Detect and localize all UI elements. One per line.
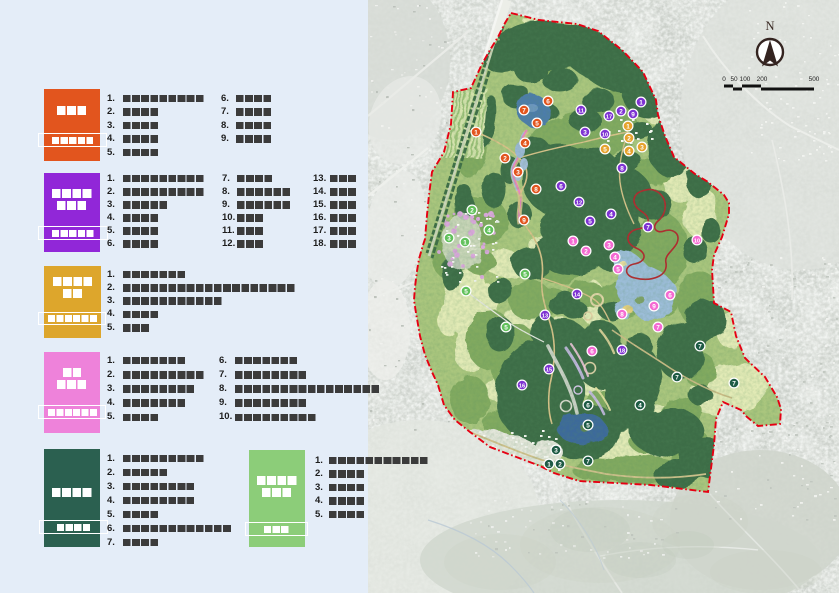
svg-text:1: 1 (547, 461, 551, 468)
svg-text:15: 15 (546, 367, 552, 373)
svg-text:5: 5 (616, 266, 620, 273)
svg-text:4: 4 (523, 140, 527, 147)
svg-text:3: 3 (554, 447, 558, 454)
svg-text:7: 7 (646, 224, 650, 231)
svg-text:17: 17 (606, 114, 612, 120)
svg-text:7: 7 (675, 374, 679, 381)
svg-text:4: 4 (609, 211, 613, 218)
svg-text:16: 16 (519, 383, 525, 389)
svg-text:7: 7 (698, 343, 702, 350)
svg-text:4: 4 (638, 402, 642, 409)
svg-text:13: 13 (542, 313, 548, 319)
svg-text:5: 5 (586, 422, 590, 429)
svg-text:9: 9 (522, 217, 526, 224)
svg-text:0: 0 (722, 76, 726, 83)
svg-text:18: 18 (619, 348, 625, 354)
svg-text:7: 7 (586, 458, 590, 465)
svg-text:6: 6 (559, 183, 563, 190)
svg-text:1: 1 (626, 123, 630, 130)
svg-text:9: 9 (652, 303, 656, 310)
svg-text:5: 5 (464, 288, 468, 295)
svg-text:3: 3 (583, 129, 587, 136)
svg-text:N: N (765, 19, 774, 33)
svg-text:1: 1 (474, 129, 478, 136)
svg-text:6: 6 (668, 292, 672, 299)
svg-text:100: 100 (740, 76, 751, 83)
svg-text:4: 4 (627, 148, 631, 155)
svg-text:7: 7 (732, 380, 736, 387)
svg-text:3: 3 (607, 242, 611, 249)
svg-text:9: 9 (631, 111, 635, 118)
svg-text:3: 3 (447, 235, 451, 242)
svg-text:1: 1 (639, 99, 643, 106)
svg-text:2: 2 (584, 248, 588, 255)
svg-text:10: 10 (694, 238, 700, 244)
svg-text:1: 1 (463, 239, 467, 246)
svg-text:11: 11 (578, 108, 584, 114)
svg-text:6: 6 (546, 98, 550, 105)
svg-text:1: 1 (571, 238, 575, 245)
svg-text:6: 6 (590, 348, 594, 355)
svg-text:5: 5 (603, 146, 607, 153)
svg-text:500: 500 (809, 76, 820, 83)
svg-text:2: 2 (558, 461, 562, 468)
svg-text:5: 5 (504, 324, 508, 331)
svg-text:8: 8 (534, 186, 538, 193)
svg-text:10: 10 (602, 132, 608, 138)
svg-text:4: 4 (487, 227, 491, 234)
svg-text:3: 3 (516, 169, 520, 176)
svg-text:8: 8 (620, 165, 624, 172)
svg-text:2: 2 (503, 155, 507, 162)
svg-text:3: 3 (640, 144, 644, 151)
svg-text:5: 5 (588, 218, 592, 225)
svg-text:6: 6 (586, 402, 590, 409)
svg-text:2: 2 (470, 207, 474, 214)
svg-text:2: 2 (619, 108, 623, 115)
svg-text:50: 50 (730, 76, 738, 83)
svg-text:7: 7 (522, 107, 526, 114)
svg-text:5: 5 (535, 120, 539, 127)
svg-text:200: 200 (757, 76, 768, 83)
svg-text:7: 7 (656, 324, 660, 331)
svg-text:4: 4 (613, 254, 617, 261)
svg-text:14: 14 (574, 292, 581, 298)
svg-text:12: 12 (576, 200, 582, 206)
svg-text:8: 8 (620, 311, 624, 318)
svg-text:5: 5 (523, 271, 527, 278)
svg-text:2: 2 (627, 135, 631, 142)
